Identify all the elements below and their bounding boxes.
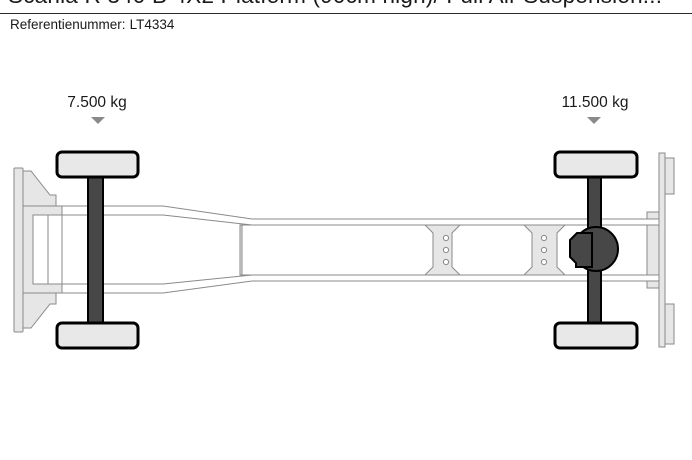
front-wheel-bottom [57,323,138,348]
rear-axle-arrow-down-icon [587,117,601,124]
bumper-wing-top [23,171,56,206]
bolt-hole [541,259,546,264]
frame-rail-top [62,206,660,225]
bolt-hole [541,247,546,252]
reference-value: LT4334 [130,17,175,32]
rear-frame-bar [659,153,665,347]
bolt-hole [443,259,448,264]
frame-panel-1 [242,225,433,275]
rear-bracket-top [665,158,674,194]
bolt-hole [443,235,448,240]
bolt-hole [443,247,448,252]
front-axle-group [57,152,138,348]
rear-frame-tab-bottom [647,281,660,288]
rear-axle-load-label: 11.500 kg [562,94,629,112]
front-axle-shaft [88,166,103,334]
page-title: Scania R 340 B 4X2 Platform (90cm high)/… [8,0,692,7]
reference-number: Referentienummer:LT4334 [10,17,174,33]
frame-rail-bottom [62,275,660,293]
front-wheel-top [57,152,138,177]
reference-label: Referentienummer: [10,17,126,32]
front-axle-arrow-down-icon [91,117,105,124]
frame-panel-2 [452,225,532,275]
rear-frame-tab-top [647,212,660,219]
rear-bracket-bottom [665,304,674,344]
bolt-hole [541,235,546,240]
front-axle-load-label: 7.500 kg [67,94,126,112]
chassis-diagram [0,140,692,360]
bumper-wing-bottom [23,293,56,328]
bumper-bar [14,168,23,332]
rear-wheel-top [555,152,637,177]
listing-image-page: Scania R 340 B 4X2 Platform (90cm high)/… [0,0,692,460]
rear-wheel-bottom [555,323,637,348]
title-separator [0,13,692,14]
